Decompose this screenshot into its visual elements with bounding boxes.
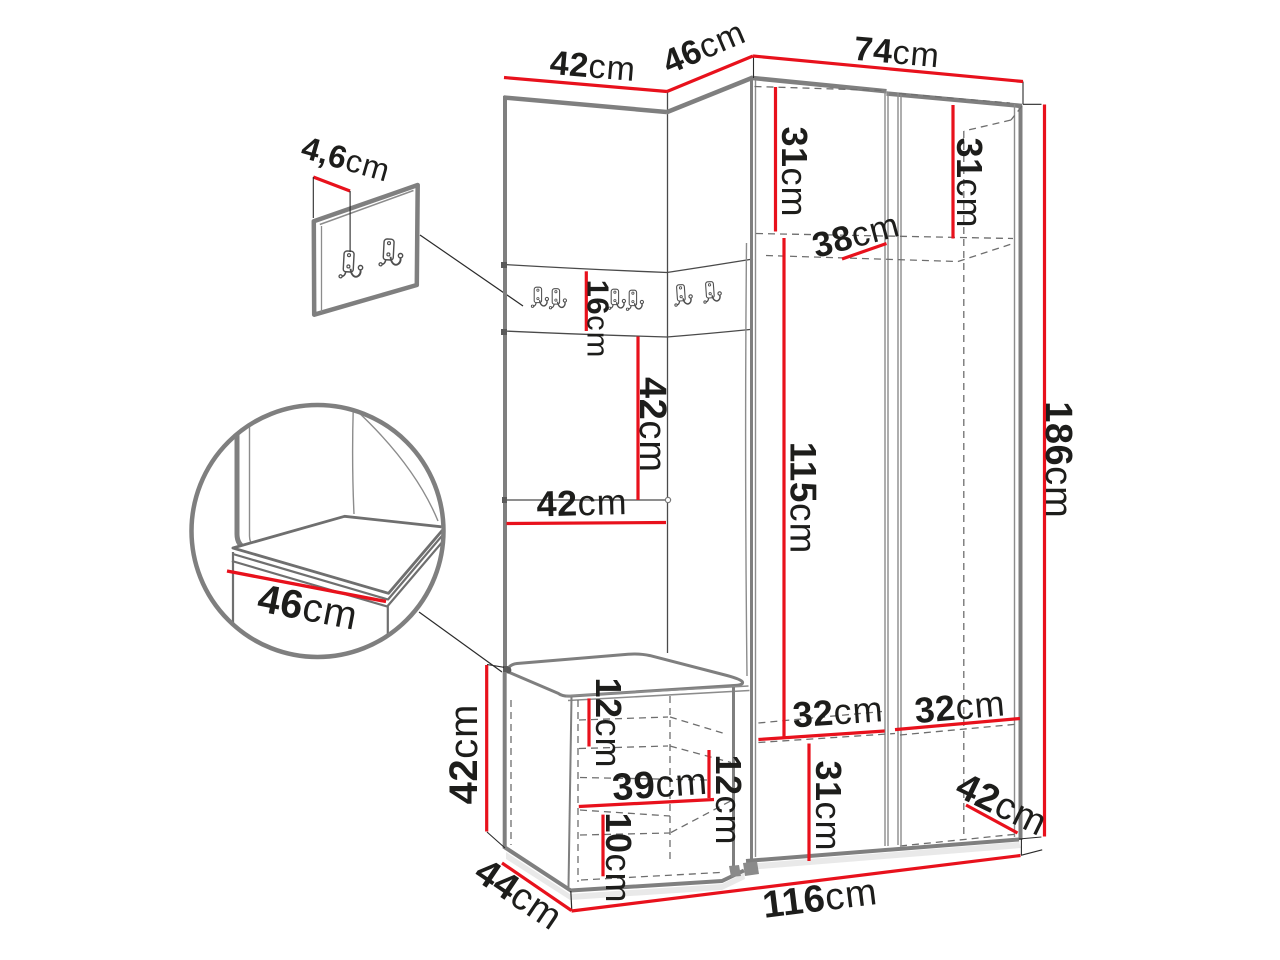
svg-text:31cm: 31cm bbox=[808, 760, 849, 851]
svg-text:31cm: 31cm bbox=[774, 126, 815, 217]
svg-text:10cm: 10cm bbox=[598, 812, 639, 903]
svg-text:12cm: 12cm bbox=[588, 677, 629, 768]
svg-text:42cm: 42cm bbox=[548, 44, 637, 89]
svg-text:42cm: 42cm bbox=[631, 377, 673, 473]
svg-text:32cm: 32cm bbox=[913, 682, 1007, 731]
svg-text:74cm: 74cm bbox=[852, 30, 941, 76]
svg-text:31cm: 31cm bbox=[949, 137, 990, 228]
svg-text:42cm: 42cm bbox=[536, 481, 628, 524]
svg-text:16cm: 16cm bbox=[580, 280, 615, 359]
svg-text:42cm: 42cm bbox=[442, 704, 486, 805]
svg-text:12cm: 12cm bbox=[708, 754, 749, 845]
svg-text:115cm: 115cm bbox=[782, 442, 823, 555]
svg-text:32cm: 32cm bbox=[791, 688, 885, 735]
svg-text:186cm: 186cm bbox=[1037, 401, 1079, 519]
